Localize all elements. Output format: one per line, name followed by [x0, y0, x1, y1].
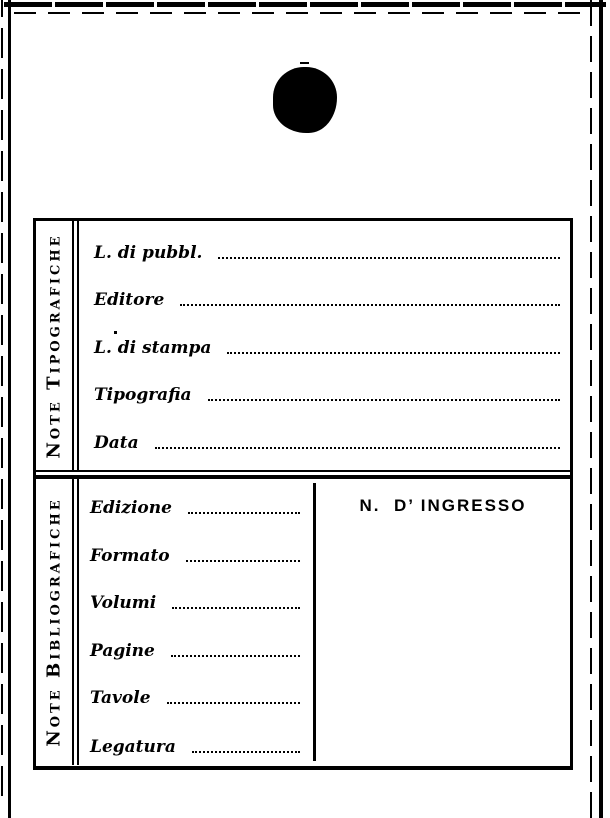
label-column-divider — [72, 479, 79, 765]
section-title-vertical: Note Bibliografiche — [36, 479, 72, 765]
dotted-fill-line — [171, 655, 300, 657]
field-label: L. di pubbl. — [94, 242, 202, 264]
dotted-fill-line — [155, 447, 560, 449]
field-label: Tavole — [90, 687, 151, 709]
field-row: L. di pubbl. — [94, 242, 562, 264]
field-row: Tipografia — [94, 384, 562, 406]
field-label: Pagine — [90, 640, 155, 662]
label-column-divider — [72, 221, 79, 470]
section-note-tipografiche: Note Tipografiche L. di pubbl. Editore L… — [36, 221, 570, 470]
accession-label: N. D’ INGRESSO — [360, 496, 527, 515]
page-border-top-inner — [14, 12, 589, 14]
section-title-vertical: Note Tipografiche — [36, 221, 72, 470]
scanned-library-card: Note Tipografiche L. di pubbl. Editore L… — [0, 0, 610, 818]
dotted-fill-line — [167, 702, 300, 704]
field-row: Volumi — [90, 592, 302, 614]
field-row: Edizione — [90, 497, 302, 519]
field-label: Volumi — [90, 592, 156, 614]
field-row: Pagine — [90, 640, 302, 662]
field-label: Formato — [90, 545, 170, 567]
form-table: Note Tipografiche L. di pubbl. Editore L… — [33, 218, 573, 770]
field-label: L. di stampa — [94, 337, 211, 359]
page-border-right-inner — [590, 0, 592, 818]
punch-hole-icon — [273, 67, 337, 133]
section-title: Note Tipografiche — [44, 233, 65, 458]
field-row: Tavole — [90, 687, 302, 709]
field-label: Editore — [94, 289, 164, 311]
page-border-left-inner — [8, 0, 11, 818]
field-label: Edizione — [90, 497, 172, 519]
section-note-bibliografiche: Note Bibliografiche Edizione Formato Vol… — [36, 479, 570, 765]
section-divider-rule — [36, 470, 570, 479]
dotted-fill-line — [192, 751, 300, 753]
field-row: Data — [94, 432, 562, 454]
dotted-fill-line — [180, 304, 560, 306]
field-label: Legatura — [90, 736, 176, 758]
page-border-left-outer — [1, 0, 3, 796]
field-row: Editore — [94, 289, 562, 311]
ink-speck — [300, 62, 309, 64]
dotted-fill-line — [208, 399, 560, 401]
field-label: Data — [94, 432, 139, 454]
dotted-fill-line — [186, 560, 300, 562]
dotted-fill-line — [172, 607, 300, 609]
dotted-fill-line — [218, 257, 560, 259]
field-row: Formato — [90, 545, 302, 567]
dotted-fill-line — [188, 512, 300, 514]
field-label: Tipografia — [94, 384, 192, 406]
section-title: Note Bibliografiche — [44, 497, 65, 746]
dotted-fill-line — [227, 352, 560, 354]
page-border-right-outer — [599, 0, 603, 818]
field-row: Legatura — [90, 736, 302, 758]
accession-number-cell: N. D’ INGRESSO — [316, 479, 570, 765]
field-row: L. di stampa — [94, 337, 562, 359]
page-border-top-outer — [4, 2, 606, 7]
